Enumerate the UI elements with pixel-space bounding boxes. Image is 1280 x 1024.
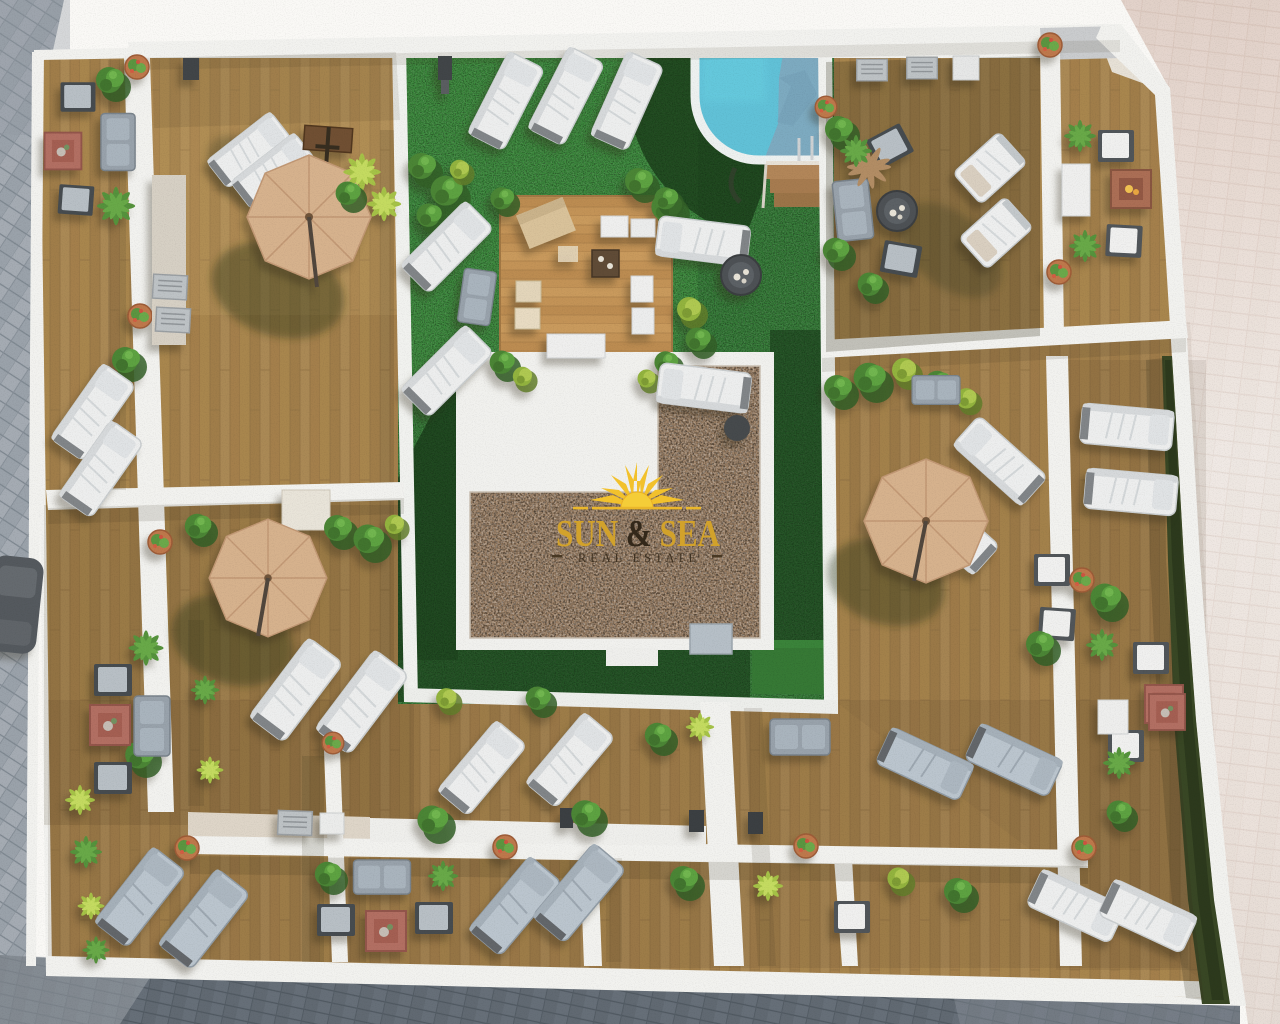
svg-text:SUN & SEA: SUN & SEA: [556, 513, 720, 555]
svg-text:REAL ESTATE: REAL ESTATE: [578, 551, 700, 565]
